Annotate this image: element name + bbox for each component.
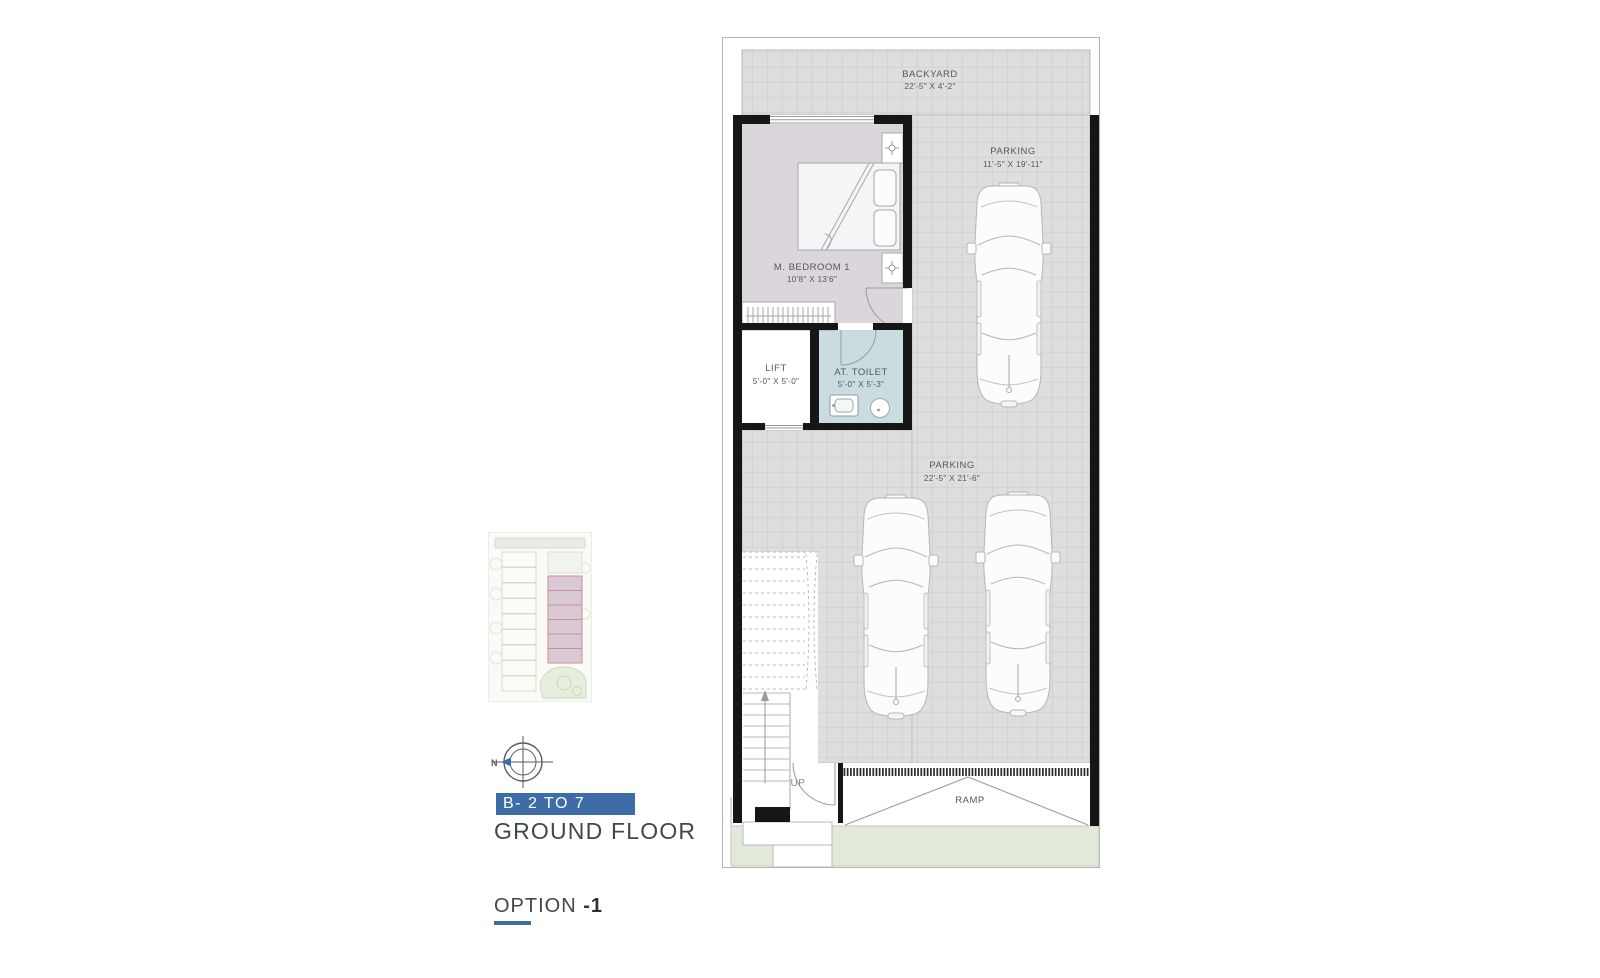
north-arrow-icon (501, 758, 511, 767)
toilet-dims: 5'-0" X 5'-3" (838, 380, 885, 389)
lift-label: LIFT (765, 363, 787, 374)
site-plan-thumbnail (488, 532, 592, 702)
option-label: OPTION -1 (494, 895, 603, 918)
stairs-up-label: UP (791, 778, 806, 789)
block-badge: B- 2 TO 7 (496, 793, 635, 815)
ceiling-fan-icon (882, 253, 903, 283)
ceiling-fan-icon (882, 133, 903, 163)
page: N B- 2 TO 7 GROUND FLOOR OPTION -1 (0, 0, 1600, 978)
parking2-label: PARKING (929, 460, 975, 471)
north-compass: N (489, 735, 559, 791)
toilet-label: AT. TOILET (834, 367, 888, 378)
option-number: -1 (583, 895, 603, 917)
option-underline (494, 921, 531, 925)
floor-title: GROUND FLOOR (494, 818, 696, 845)
parking1-label: PARKING (990, 146, 1036, 157)
lift-door (765, 423, 803, 430)
parking1-dims: 11'-5" X 19'-11" (983, 160, 1043, 169)
ramp-label: RAMP (955, 795, 984, 806)
floor-plan: BACKYARD 22'-5" X 4'-2" PARKING 11'-5" X… (722, 37, 1100, 868)
site-plan-thumbnail-drawing (488, 532, 592, 702)
highlighted-plots-b2-b7 (548, 576, 582, 663)
bedroom-label: M. BEDROOM 1 (774, 262, 850, 273)
entry-step (773, 845, 832, 867)
parking2-dims: 22'-5" X 21'-6" (924, 474, 980, 483)
bedroom-window (770, 115, 874, 124)
washbasin (830, 395, 858, 416)
backyard-label: BACKYARD (902, 69, 958, 80)
bedroom-dims: 10'8" X 13'6" (787, 275, 837, 284)
compass-north-label: N (491, 758, 498, 768)
gate-shutter (843, 768, 1090, 776)
option-prefix: OPTION (494, 895, 583, 917)
entry-porch (743, 822, 832, 845)
bed (798, 163, 900, 250)
lift-dims: 5'-0" X 5'-0" (753, 377, 800, 386)
backyard-dims: 22'-5" X 4'-2" (904, 82, 955, 91)
floor-drain (871, 399, 890, 418)
